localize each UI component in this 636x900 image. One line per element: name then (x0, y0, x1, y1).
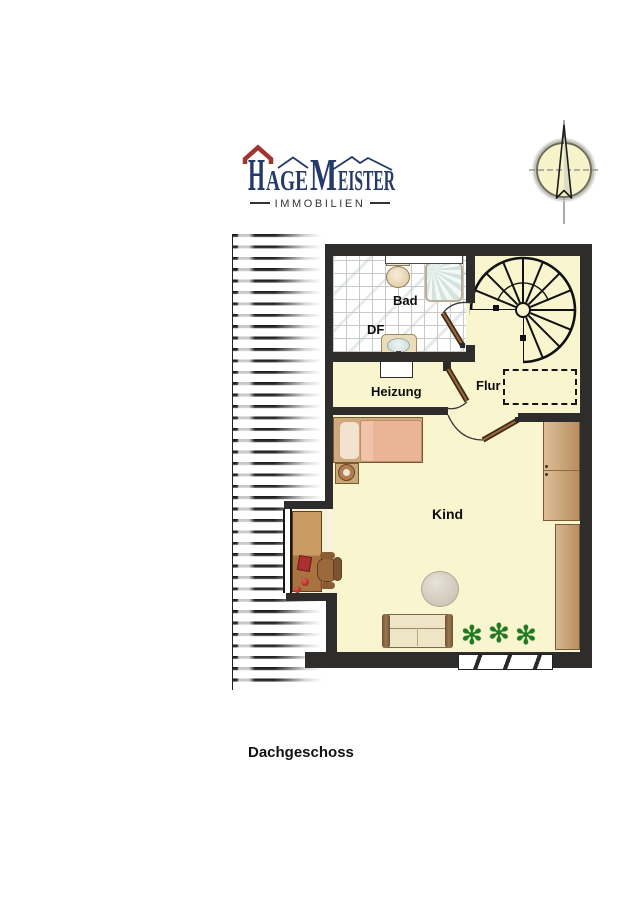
wall-bath-right (466, 252, 475, 303)
floorplan-page: H AGE M EISTER IMMOBILIEN (0, 0, 636, 900)
toilet-bowl (386, 266, 410, 288)
wall-mid-right (518, 413, 580, 422)
room-label-df: DF (367, 323, 384, 337)
bathroom-shelf-niche (385, 255, 463, 264)
wall-mid-left (325, 407, 448, 415)
bed-mattress (360, 420, 422, 462)
wall-heizung-right-stub (443, 358, 451, 371)
wall-bath-bottom (325, 352, 475, 362)
wall-left-upper (325, 244, 333, 501)
floor-plan: ✻ ✻ ✻ (0, 0, 636, 900)
wall-niche-stub-top (284, 501, 333, 509)
room-label-bad: Bad (393, 294, 418, 308)
shower (425, 262, 463, 302)
wall-bath-right-stub (466, 345, 475, 354)
plant-icon: ✻ (461, 622, 483, 648)
floor-caption: Dachgeschoss (248, 744, 354, 762)
wall-left-lower (326, 593, 337, 652)
stair-direction-marker (520, 335, 526, 341)
room-label-kind: Kind (432, 507, 463, 522)
wardrobe-divider (544, 470, 579, 471)
plant-icon: ✻ (488, 620, 510, 646)
sofa-armrest (445, 614, 453, 648)
desk-chair-back (333, 557, 342, 581)
wall-niche-stub-bottom (286, 593, 333, 601)
dormer-window (283, 509, 292, 593)
wall-top (325, 244, 592, 256)
desk-chair-arm (320, 582, 335, 589)
desk-book (297, 555, 312, 572)
radiator (380, 360, 413, 378)
stair-direction-marker (493, 305, 499, 311)
wardrobe-handle (545, 465, 548, 468)
desk-chair-arm (320, 552, 335, 559)
room-label-flur: Flur (476, 379, 501, 393)
skylight-dashed-outline (503, 369, 577, 405)
sofa-armrest (382, 614, 390, 648)
nightstand-lamp-shade (343, 469, 350, 476)
cabinet (555, 524, 580, 650)
wardrobe-handle (545, 473, 548, 476)
plant-icon: ✻ (515, 622, 537, 648)
bed-pillow (339, 421, 360, 460)
desk-ball (301, 578, 309, 586)
wall-right (580, 244, 592, 668)
round-rug (421, 571, 459, 607)
roof-slope-hatching (232, 234, 325, 690)
spiral-staircase (460, 248, 590, 378)
desk-ball (294, 586, 301, 593)
room-label-heizung: Heizung (371, 385, 422, 399)
sofa-seat-divider (417, 628, 418, 646)
window-bottom (458, 654, 553, 670)
